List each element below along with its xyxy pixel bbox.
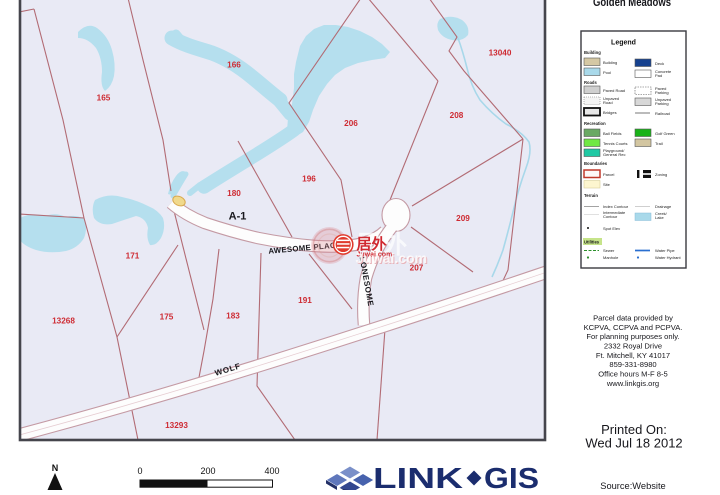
svg-text:175: 175 (160, 313, 174, 322)
svg-text:Juwai.com: Juwai.com (356, 250, 428, 266)
svg-text:166: 166 (227, 61, 241, 70)
svg-text:LINK: LINK (373, 463, 463, 490)
svg-text:Bridges: Bridges (603, 110, 617, 115)
svg-text:Utilities: Utilities (584, 240, 600, 245)
svg-text:13040: 13040 (489, 49, 512, 58)
svg-text:For planning purposes only.: For planning purposes only. (586, 332, 679, 341)
svg-text:Parcel data provided by: Parcel data provided by (593, 314, 673, 323)
svg-text:13268: 13268 (52, 317, 75, 326)
svg-text:Manhole: Manhole (603, 255, 619, 260)
svg-text:208: 208 (450, 111, 464, 120)
svg-text:13293: 13293 (165, 421, 188, 430)
svg-text:Contour: Contour (603, 214, 618, 219)
svg-text:Golf Green: Golf Green (655, 131, 675, 136)
svg-text:0: 0 (137, 466, 142, 476)
svg-text:Water Pipe: Water Pipe (655, 248, 675, 253)
svg-text:Spot Elev: Spot Elev (603, 226, 620, 231)
svg-text:Road: Road (603, 100, 613, 105)
svg-text:Office hours M-F 8-5: Office hours M-F 8-5 (598, 370, 668, 379)
svg-text:Building: Building (584, 50, 601, 55)
svg-text:183: 183 (226, 312, 240, 321)
svg-text:General Rec: General Rec (603, 152, 625, 157)
svg-text:Roads: Roads (584, 80, 597, 85)
svg-text:Ft. Mitchell, KY 41017: Ft. Mitchell, KY 41017 (596, 351, 670, 360)
svg-text:GIS: GIS (484, 463, 539, 490)
svg-text:Drainage: Drainage (655, 204, 672, 209)
svg-text:Parking: Parking (655, 90, 669, 95)
svg-text:Recreation: Recreation (584, 121, 606, 126)
svg-text:206: 206 (344, 119, 358, 128)
svg-text:Source:Website: Source:Website (600, 481, 665, 490)
svg-text:Terrain: Terrain (584, 193, 598, 198)
svg-text:Zoning: Zoning (655, 172, 667, 177)
svg-text:Site: Site (603, 182, 611, 187)
svg-text:Pool: Pool (603, 70, 611, 75)
svg-text:180: 180 (227, 189, 241, 198)
svg-text:171: 171 (126, 252, 140, 261)
svg-text:Pad: Pad (655, 73, 662, 78)
svg-text:Boundaries: Boundaries (584, 161, 608, 166)
svg-text:Water Hydrant: Water Hydrant (655, 255, 682, 260)
svg-text:A-1: A-1 (229, 211, 247, 223)
svg-text:859-331-8980: 859-331-8980 (609, 360, 656, 369)
svg-text:Trail: Trail (655, 141, 663, 146)
svg-text:Ball Fields: Ball Fields (603, 131, 621, 136)
svg-text:165: 165 (97, 94, 111, 103)
svg-text:Lake: Lake (655, 215, 664, 220)
svg-text:Paved Road: Paved Road (603, 88, 625, 93)
svg-text:Building: Building (603, 60, 617, 65)
svg-text:Golden Meadows: Golden Meadows (593, 0, 671, 9)
svg-text:196: 196 (302, 175, 316, 184)
svg-text:Legend: Legend (611, 40, 636, 47)
svg-text:N: N (52, 463, 59, 473)
svg-text:Wed Jul 18 2012: Wed Jul 18 2012 (585, 436, 682, 451)
svg-text:200: 200 (200, 466, 215, 476)
svg-text:KCPVA, CCPVA and PCPVA.: KCPVA, CCPVA and PCPVA. (584, 323, 683, 332)
svg-text:Railroad: Railroad (655, 111, 670, 116)
svg-text:209: 209 (456, 214, 470, 223)
svg-text:Index Contour: Index Contour (603, 204, 629, 209)
svg-text:www.linkgis.org: www.linkgis.org (606, 379, 659, 388)
svg-text:Tennis Courts: Tennis Courts (603, 141, 627, 146)
svg-text:Parking: Parking (655, 101, 669, 106)
svg-text:Parcel: Parcel (603, 172, 614, 177)
svg-text:2332 Royal Drive: 2332 Royal Drive (604, 342, 662, 351)
svg-text:Deck: Deck (655, 61, 664, 66)
svg-text:400: 400 (264, 466, 279, 476)
svg-text:191: 191 (298, 296, 312, 305)
svg-text:Sewer: Sewer (603, 248, 615, 253)
